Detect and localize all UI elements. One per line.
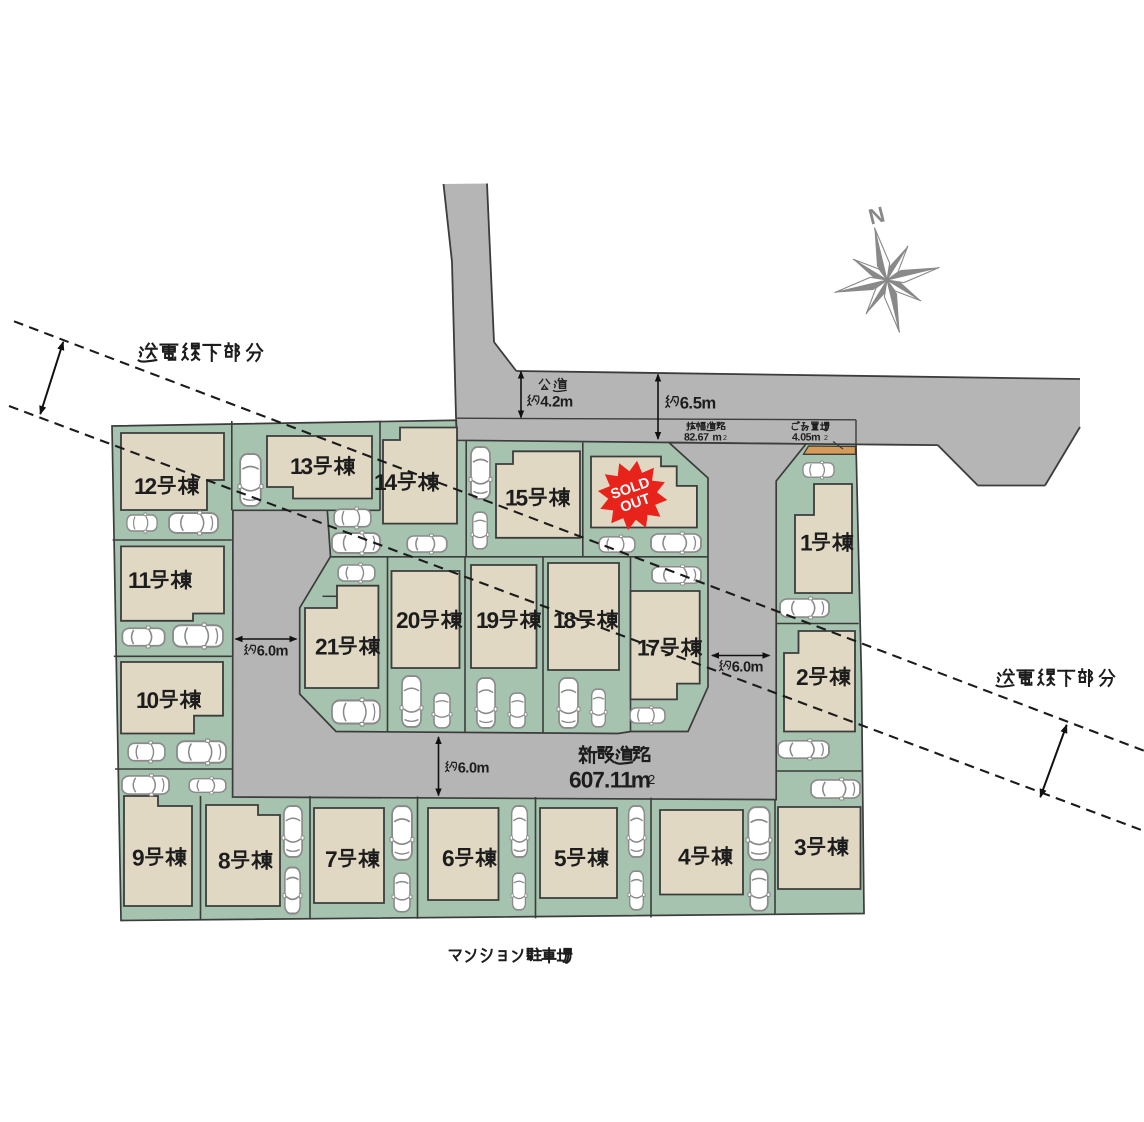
svg-text:1: 1 <box>800 529 813 555</box>
svg-text:3: 3 <box>301 453 314 479</box>
svg-text:4: 4 <box>385 469 398 495</box>
svg-text:8: 8 <box>218 847 231 873</box>
svg-text:6: 6 <box>442 845 455 871</box>
svg-text:m: m <box>811 431 820 443</box>
svg-text:3: 3 <box>794 834 807 860</box>
svg-text:2: 2 <box>648 772 655 787</box>
svg-text:9: 9 <box>132 844 145 870</box>
svg-text:7: 7 <box>648 635 661 661</box>
svg-text:m: m <box>560 394 573 411</box>
svg-text:5: 5 <box>554 845 567 871</box>
svg-text:2: 2 <box>723 435 727 442</box>
svg-text:m: m <box>751 660 764 676</box>
svg-text:7: 7 <box>703 431 709 443</box>
svg-text:4: 4 <box>678 843 691 869</box>
svg-text:2: 2 <box>145 473 158 499</box>
svg-text:m: m <box>477 761 490 777</box>
svg-text:2: 2 <box>796 664 809 690</box>
svg-text:1: 1 <box>139 567 152 593</box>
svg-text:2: 2 <box>824 435 828 442</box>
svg-text:m: m <box>276 644 289 660</box>
svg-text:5: 5 <box>516 485 529 511</box>
svg-text:7: 7 <box>325 846 338 872</box>
svg-text:9: 9 <box>487 607 500 633</box>
svg-text:m: m <box>701 393 716 412</box>
svg-text:0: 0 <box>147 687 160 713</box>
svg-text:0: 0 <box>408 607 421 633</box>
svg-text:m: m <box>712 431 721 443</box>
svg-text:1: 1 <box>327 633 340 659</box>
svg-text:8: 8 <box>564 607 577 633</box>
